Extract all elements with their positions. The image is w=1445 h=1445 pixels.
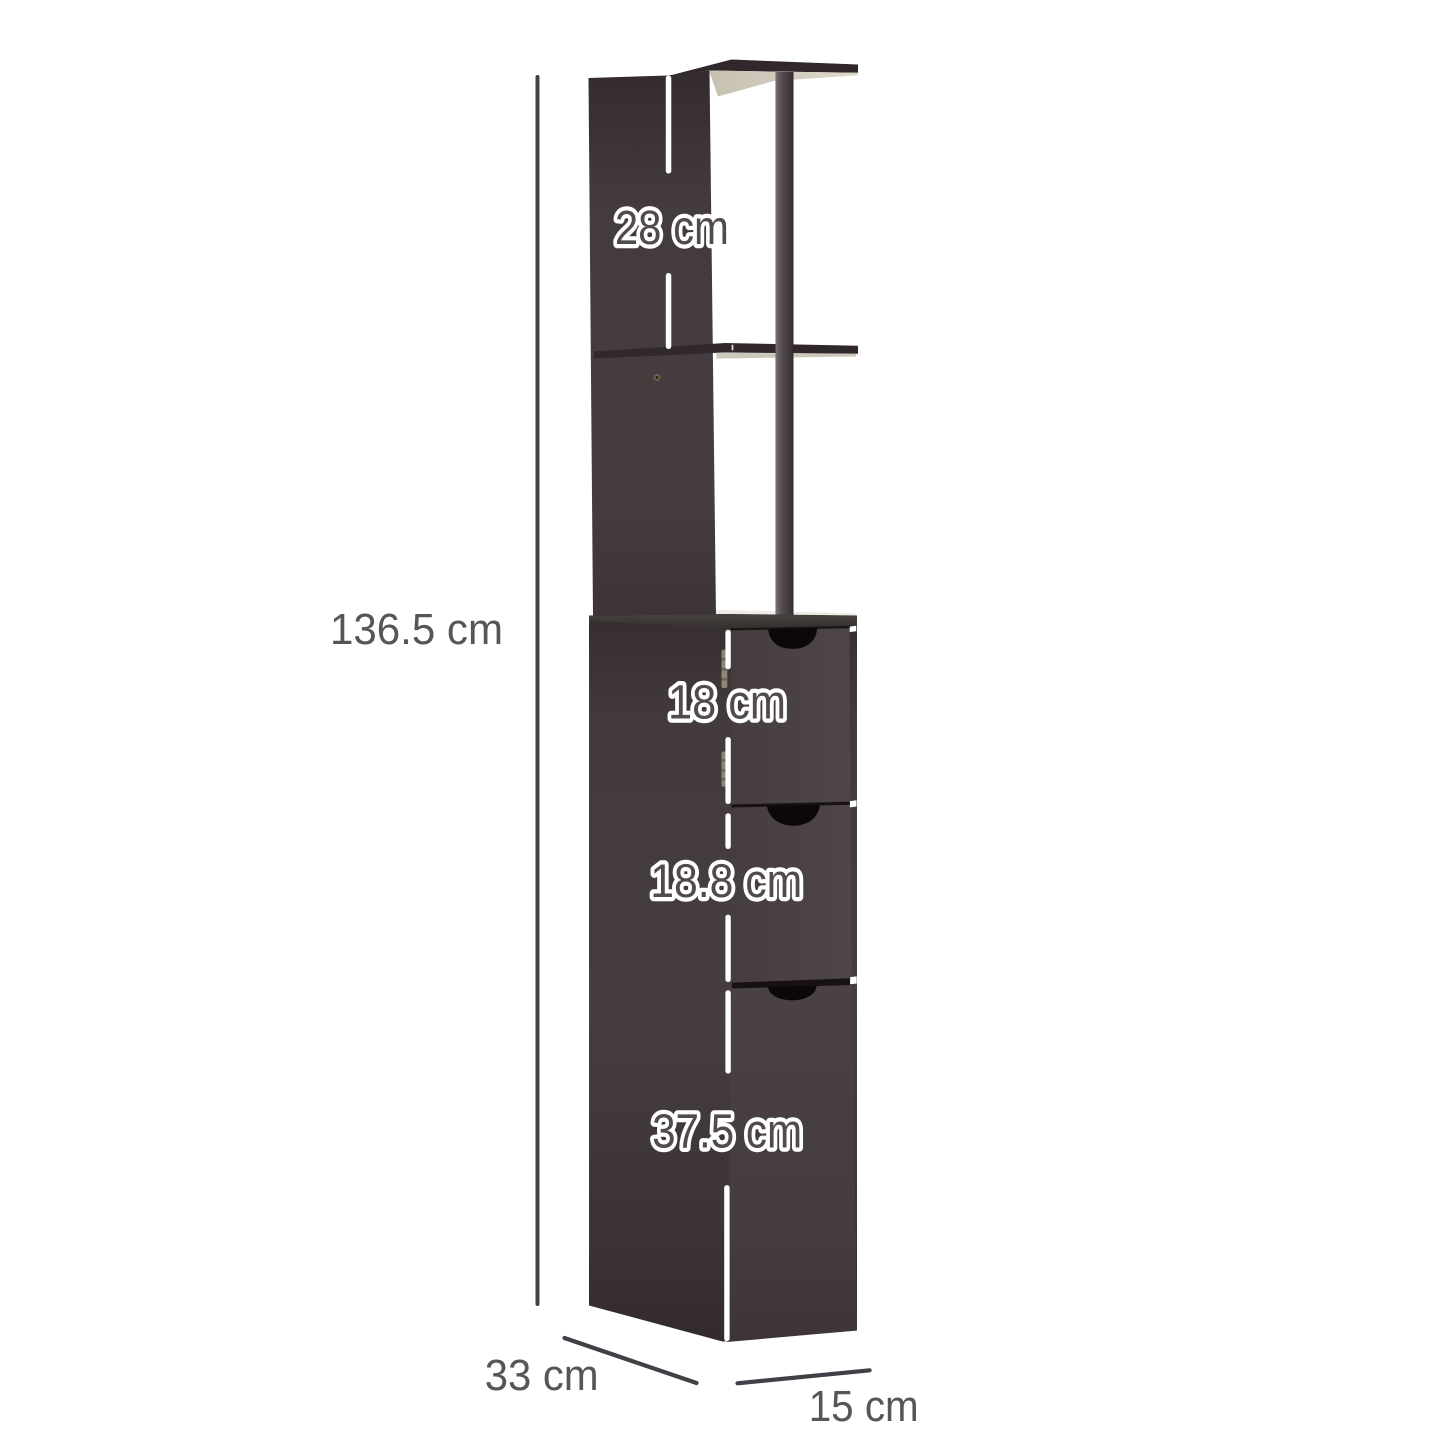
svg-text:136.5 cm: 136.5 cm bbox=[330, 605, 503, 654]
svg-text:28 cm: 28 cm bbox=[615, 201, 729, 255]
svg-text:37.5 cm: 37.5 cm bbox=[652, 1106, 802, 1159]
svg-text:15 cm: 15 cm bbox=[809, 1382, 919, 1431]
svg-text:18 cm: 18 cm bbox=[668, 676, 786, 730]
svg-text:33 cm: 33 cm bbox=[485, 1352, 599, 1400]
svg-text:18.8 cm: 18.8 cm bbox=[650, 854, 802, 907]
